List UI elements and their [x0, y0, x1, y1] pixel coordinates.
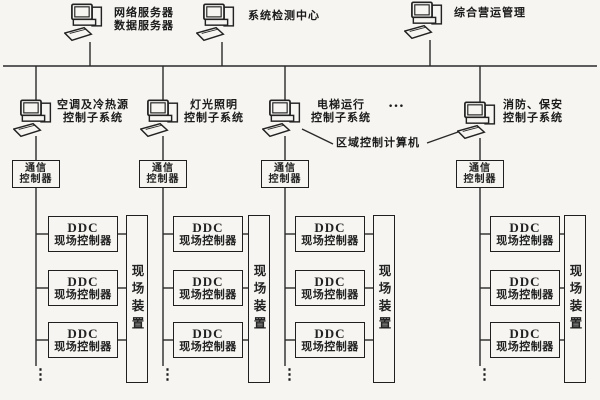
label-hvac-subsystem: 空调及冷热源控制子系统	[57, 99, 129, 125]
computer-icon-lighting-subsystem	[140, 99, 186, 139]
computer-icon-operations-management	[404, 1, 450, 41]
ddc-controller-box: DDC现场控制器	[173, 270, 243, 306]
bus-continuation-dots: ⋮	[160, 368, 175, 383]
computer-icon-system-monitoring	[196, 3, 242, 43]
label-system-monitoring-center: 系统检测中心	[248, 10, 320, 23]
bas-architecture-diagram: 网络服务器数据服务器 系统检测中心 综合营运管理 空调及冷热源控制子系统 灯光照…	[0, 0, 600, 400]
label-network-data-server: 网络服务器数据服务器	[114, 7, 174, 33]
computer-icon-elevator-subsystem	[262, 99, 308, 139]
comm-controller-box-3: 通信控制器	[261, 160, 309, 188]
field-devices-column-1: 现场装置	[126, 215, 148, 383]
ddc-controller-box: DDC现场控制器	[48, 322, 118, 358]
computer-icon-fire-security-subsystem	[457, 101, 503, 141]
more-subsystems-ellipsis: …	[388, 94, 405, 112]
field-devices-column-2: 现场装置	[248, 215, 270, 383]
label-elevator-subsystem: 电梯运行控制子系统	[311, 99, 371, 125]
comm-controller-box-2: 通信控制器	[139, 160, 187, 188]
comm-controller-box-4: 通信控制器	[456, 160, 504, 188]
ddc-controller-box: DDC现场控制器	[295, 216, 365, 252]
comm-controller-box-1: 通信控制器	[12, 160, 60, 188]
ddc-controller-box: DDC现场控制器	[48, 216, 118, 252]
ddc-controller-box: DDC现场控制器	[295, 322, 365, 358]
ddc-controller-box: DDC现场控制器	[48, 270, 118, 306]
bus-continuation-dots: ⋮	[282, 368, 297, 383]
ddc-controller-box: DDC现场控制器	[490, 270, 560, 306]
computer-icon-network-server	[64, 3, 110, 43]
ddc-controller-box: DDC现场控制器	[490, 322, 560, 358]
ddc-controller-box: DDC现场控制器	[173, 216, 243, 252]
label-area-control-computer: 区域控制计算机	[336, 137, 420, 150]
bus-continuation-dots: ⋮	[477, 368, 492, 383]
label-operations-management: 综合营运管理	[454, 7, 526, 20]
computer-icon-hvac-subsystem	[13, 99, 59, 139]
ddc-controller-box: DDC现场控制器	[295, 270, 365, 306]
label-fire-security-subsystem: 消防、保安控制子系统	[503, 99, 563, 125]
ddc-controller-box: DDC现场控制器	[173, 322, 243, 358]
bus-continuation-dots: ⋮	[33, 368, 48, 383]
field-devices-column-3: 现场装置	[373, 215, 395, 383]
ddc-controller-box: DDC现场控制器	[490, 216, 560, 252]
label-lighting-subsystem: 灯光照明控制子系统	[184, 99, 244, 125]
field-devices-column-4: 现场装置	[564, 215, 586, 383]
